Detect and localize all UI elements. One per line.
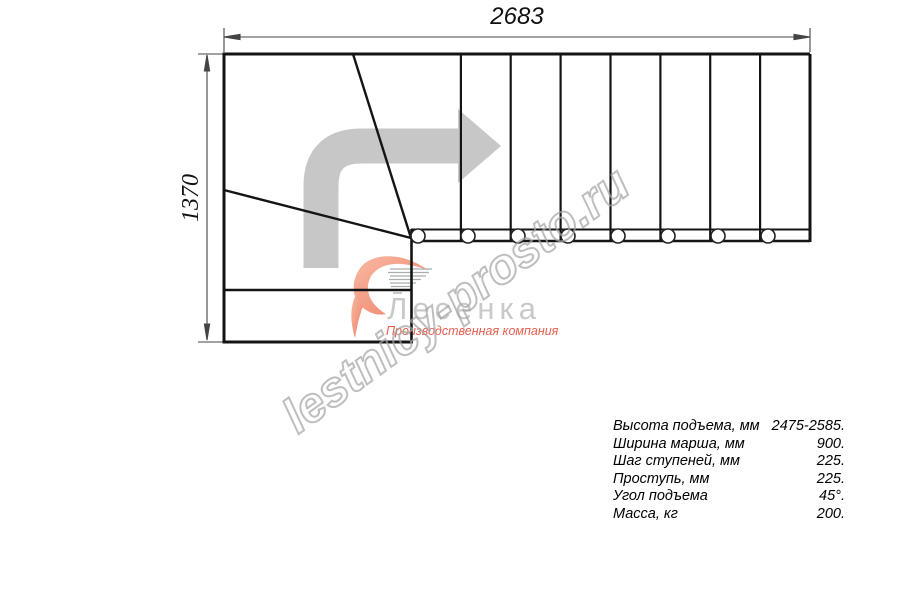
spec-row: Масса, кг 200. xyxy=(613,506,845,524)
spec-value: 45°. xyxy=(819,488,845,506)
dimension-width-label: 2683 xyxy=(437,3,597,31)
dimension-height-label: 1370 xyxy=(178,136,204,260)
spec-label: Высота подъема, мм xyxy=(613,418,760,436)
spec-value: 200. xyxy=(817,506,845,524)
spec-value: 225. xyxy=(817,471,845,489)
spec-value: 900. xyxy=(817,436,845,454)
spec-label: Масса, кг xyxy=(613,506,678,524)
spec-row: Шаг ступеней, мм 225. xyxy=(613,453,845,471)
spec-table: Высота подъема, мм 2475-2585. Ширина мар… xyxy=(613,418,845,523)
spec-value: 2475-2585. xyxy=(772,418,845,436)
spec-row: Ширина марша, мм 900. xyxy=(613,436,845,454)
spec-label: Ширина марша, мм xyxy=(613,436,745,454)
spec-row: Угол подъема 45°. xyxy=(613,488,845,506)
spec-label: Шаг ступеней, мм xyxy=(613,453,740,471)
spec-label: Угол подъема xyxy=(613,488,708,506)
spec-row: Проступь, мм 225. xyxy=(613,471,845,489)
spec-value: 225. xyxy=(817,453,845,471)
spec-row: Высота подъема, мм 2475-2585. xyxy=(613,418,845,436)
stair-plan-drawing: Лесенка Производственная компания xyxy=(0,0,900,600)
spec-label: Проступь, мм xyxy=(613,471,709,489)
